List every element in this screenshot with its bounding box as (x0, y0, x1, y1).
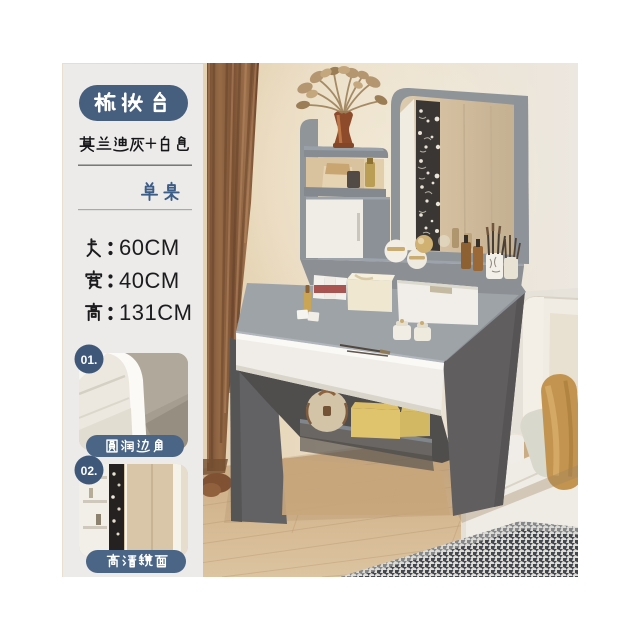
svg-text:02.: 02. (81, 464, 98, 478)
svg-text:01.: 01. (81, 353, 98, 367)
